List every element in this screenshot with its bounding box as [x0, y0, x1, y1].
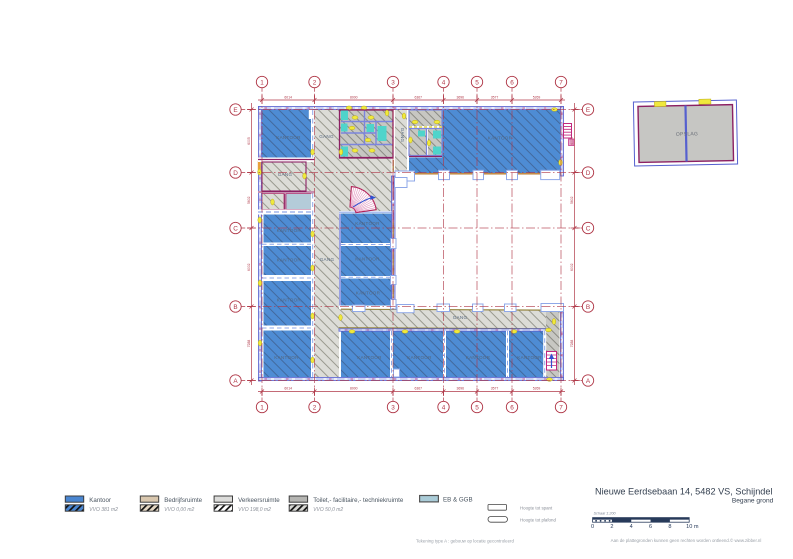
svg-text:A: A	[586, 378, 591, 385]
svg-text:KANTOOR: KANTOOR	[517, 355, 542, 360]
svg-text:6014: 6014	[284, 96, 292, 100]
svg-text:6005: 6005	[247, 137, 251, 145]
svg-text:1: 1	[260, 79, 264, 86]
svg-text:6005: 6005	[570, 137, 574, 145]
svg-text:E: E	[586, 107, 590, 114]
svg-text:KANTOOR: KANTOOR	[407, 355, 432, 360]
svg-text:7288: 7288	[247, 340, 251, 348]
svg-text:GANG: GANG	[453, 315, 468, 320]
svg-text:8000: 8000	[350, 386, 358, 390]
svg-text:5269: 5269	[533, 386, 541, 390]
svg-text:7: 7	[559, 79, 563, 86]
svg-text:VVO 0,00 m2: VVO 0,00 m2	[164, 507, 194, 513]
svg-text:Kantoor: Kantoor	[89, 497, 111, 504]
svg-text:0: 0	[591, 524, 594, 530]
svg-text:Bedrijfsruimte: Bedrijfsruimte	[164, 497, 202, 504]
svg-text:2: 2	[610, 524, 613, 530]
svg-text:KANTOOR: KANTOOR	[276, 135, 301, 140]
svg-text:7: 7	[559, 404, 563, 411]
svg-text:Nieuwe Eerdsebaan 14, 5482 VS,: Nieuwe Eerdsebaan 14, 5482 VS, Schijndel	[595, 486, 773, 497]
svg-text:D: D	[586, 170, 591, 177]
svg-text:GANG: GANG	[319, 134, 334, 139]
svg-text:KANTOOR: KANTOOR	[355, 257, 380, 262]
svg-text:6: 6	[649, 524, 652, 530]
svg-text:6014: 6014	[284, 386, 292, 390]
svg-text:KANTOOR: KANTOOR	[277, 258, 302, 263]
svg-text:8: 8	[668, 524, 671, 530]
svg-text:Tekening type A : gebouw op lo: Tekening type A : gebouw op locatie geco…	[416, 539, 514, 544]
svg-text:VVO 198,0 m2: VVO 198,0 m2	[238, 507, 271, 513]
svg-text:5602: 5602	[247, 196, 251, 204]
svg-text:5269: 5269	[533, 96, 541, 100]
svg-text:C: C	[586, 225, 591, 232]
svg-text:3: 3	[391, 404, 395, 411]
svg-text:D: D	[233, 170, 238, 177]
svg-text:OPSLAG: OPSLAG	[676, 131, 698, 137]
svg-text:6367: 6367	[415, 386, 423, 390]
svg-text:KANTOOR: KANTOOR	[355, 221, 380, 226]
svg-text:6: 6	[510, 79, 514, 86]
svg-text:3577: 3577	[491, 96, 499, 100]
svg-text:3696: 3696	[457, 96, 465, 100]
svg-text:B: B	[586, 304, 590, 311]
svg-text:6367: 6367	[415, 96, 423, 100]
svg-text:10: 10	[686, 524, 692, 530]
svg-text:C: C	[233, 225, 238, 232]
svg-text:Schaal 1:200: Schaal 1:200	[594, 512, 617, 516]
svg-text:KANTOOR: KANTOOR	[277, 228, 302, 233]
svg-text:5: 5	[475, 79, 479, 86]
svg-text:3696: 3696	[457, 386, 465, 390]
svg-text:5602: 5602	[570, 196, 574, 204]
svg-text:GANG: GANG	[400, 128, 405, 143]
svg-text:1: 1	[260, 404, 264, 411]
svg-text:6002: 6002	[247, 263, 251, 271]
svg-text:4: 4	[442, 79, 446, 86]
svg-text:Verkeersruimte: Verkeersruimte	[238, 497, 280, 504]
svg-text:EB & GGB: EB & GGB	[443, 497, 473, 504]
svg-text:Aan de plattegronden kunnen ge: Aan de plattegronden kunnen geen rechten…	[611, 538, 762, 543]
svg-text:6: 6	[510, 404, 514, 411]
svg-text:m: m	[694, 524, 699, 530]
svg-text:KANTOOR: KANTOOR	[357, 355, 382, 360]
svg-text:Toilet,- facilitaire,- technie: Toilet,- facilitaire,- techniekruimte	[313, 497, 404, 504]
svg-text:3: 3	[391, 79, 395, 86]
svg-text:VVO 50,0 m2: VVO 50,0 m2	[313, 507, 343, 513]
svg-text:A: A	[233, 378, 238, 385]
svg-text:7288: 7288	[570, 340, 574, 348]
svg-text:6002: 6002	[570, 263, 574, 271]
svg-text:2: 2	[313, 404, 317, 411]
svg-text:KANTOOR: KANTOOR	[356, 291, 381, 296]
svg-text:KANTOOR: KANTOOR	[277, 298, 302, 303]
svg-text:E: E	[233, 107, 237, 114]
svg-text:3577: 3577	[491, 386, 499, 390]
svg-text:GANG: GANG	[320, 257, 335, 262]
svg-text:VVO 381 m2: VVO 381 m2	[89, 507, 118, 513]
svg-text:4: 4	[630, 524, 633, 530]
svg-text:B: B	[233, 304, 237, 311]
svg-text:Hoogte tot plafond: Hoogte tot plafond	[520, 518, 556, 523]
svg-text:Begane grond: Begane grond	[732, 497, 774, 504]
svg-text:KANTOOR: KANTOOR	[488, 136, 513, 141]
svg-text:Hoogte tot spant: Hoogte tot spant	[520, 506, 553, 511]
svg-text:KANTOOR: KANTOOR	[466, 355, 491, 360]
svg-text:2: 2	[313, 79, 317, 86]
svg-text:4: 4	[442, 404, 446, 411]
svg-text:KANTOOR: KANTOOR	[274, 355, 299, 360]
svg-text:8000: 8000	[350, 96, 358, 100]
svg-text:5: 5	[475, 404, 479, 411]
